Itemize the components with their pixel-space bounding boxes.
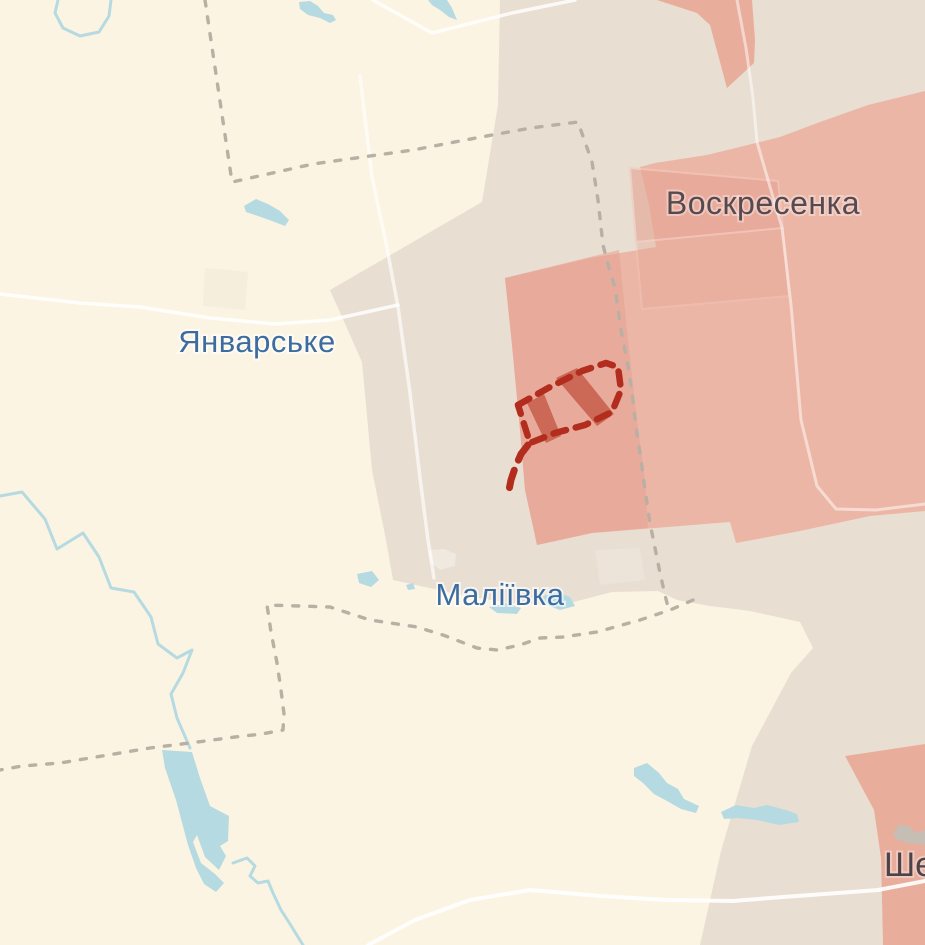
village-polygon-voskresenka-south — [636, 228, 789, 309]
map-canvas[interactable]: Январське Маліївка Воскресенка Ше — [0, 0, 925, 945]
settlement-footprint-grayzone — [595, 548, 645, 585]
label-southeast-partial: Ше — [884, 846, 925, 884]
label-voskresenka: Воскресенка — [666, 185, 860, 221]
label-maliivka: Маліївка — [436, 577, 565, 612]
settlement-footprint-yanvarske — [203, 268, 248, 310]
label-yanvarske: Январське — [178, 324, 335, 359]
